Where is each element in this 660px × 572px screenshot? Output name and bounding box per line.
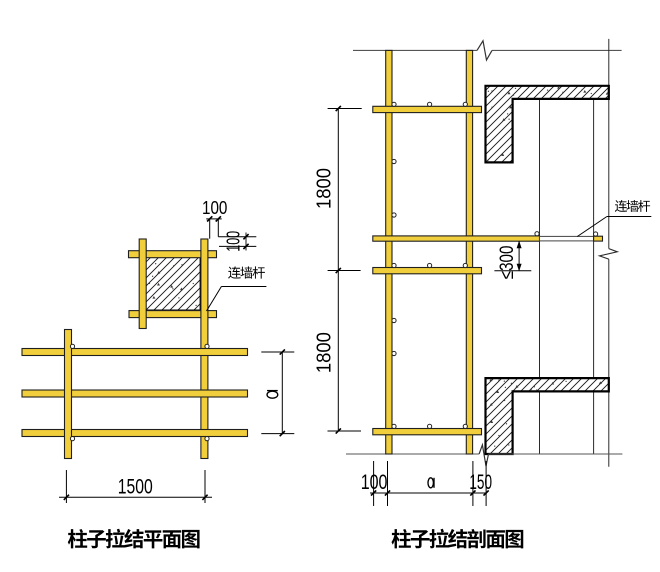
- svg-text:100: 100: [361, 471, 388, 494]
- svg-text:1800: 1800: [313, 332, 335, 373]
- svg-text:150: 150: [469, 471, 492, 494]
- svg-text:100: 100: [202, 198, 227, 218]
- svg-text:1500: 1500: [118, 476, 153, 499]
- svg-text:1800: 1800: [313, 168, 335, 209]
- svg-text:≤300: ≤300: [497, 246, 518, 280]
- svg-text:100: 100: [224, 231, 244, 252]
